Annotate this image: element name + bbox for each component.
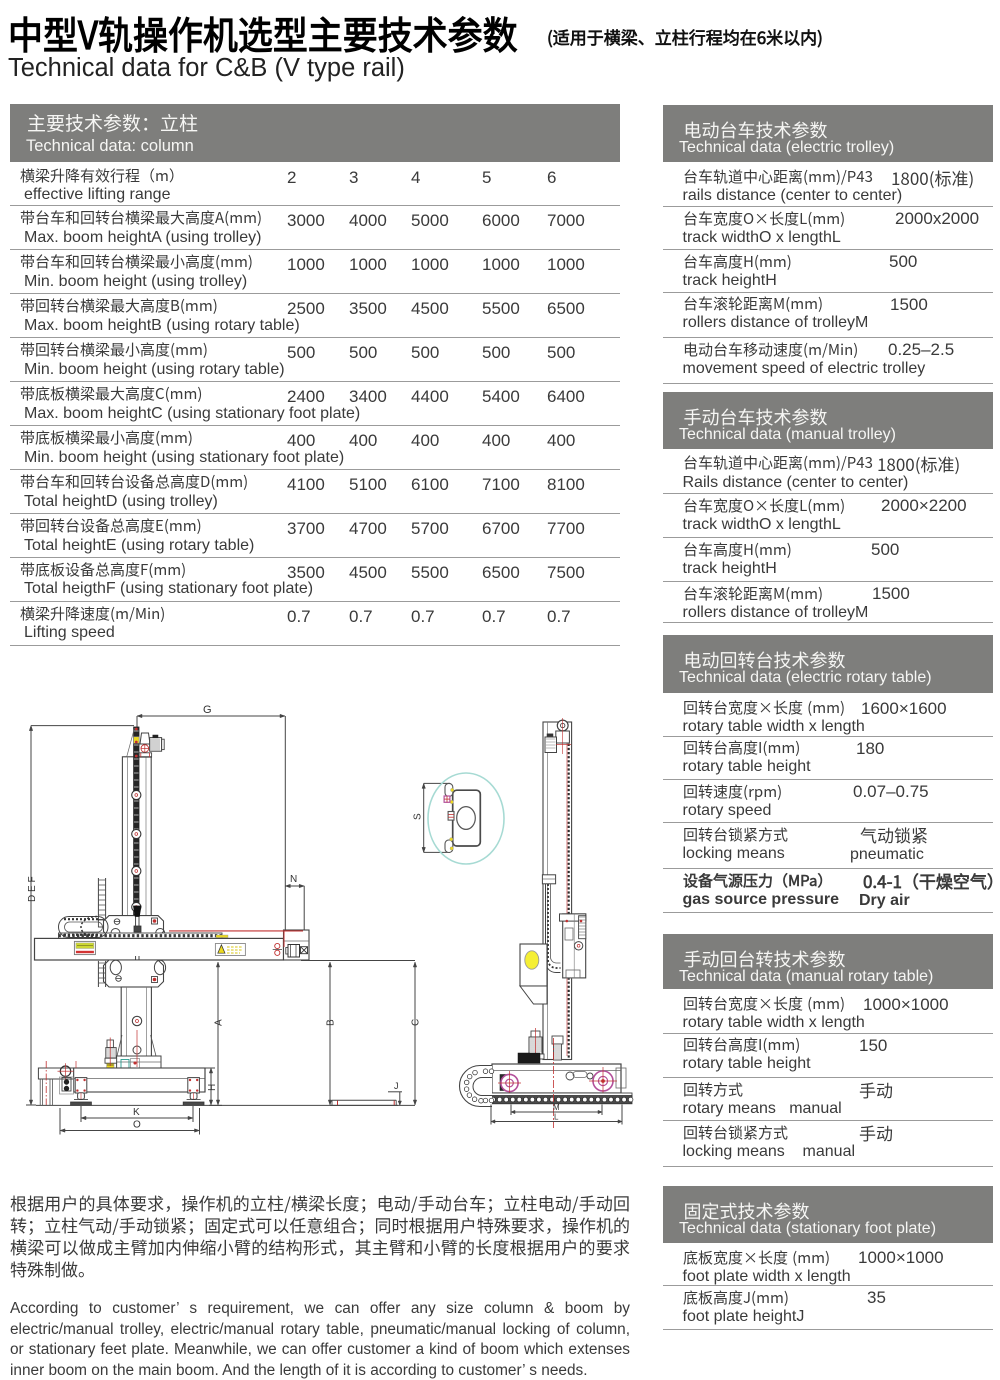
svg-text:B: B: [326, 1019, 337, 1026]
svg-text:H: H: [207, 1084, 218, 1091]
svg-text:A: A: [214, 1019, 225, 1026]
svg-text:O: O: [133, 1120, 141, 1131]
svg-text:J: J: [394, 1081, 399, 1091]
svg-text:C: C: [411, 1019, 422, 1026]
svg-text:N: N: [290, 874, 297, 885]
svg-text:K: K: [133, 1107, 140, 1118]
svg-text:S: S: [413, 813, 424, 820]
svg-text:L: L: [554, 1113, 559, 1122]
svg-text:M: M: [553, 1103, 560, 1112]
svg-text:G: G: [203, 704, 212, 716]
svg-text:D E F: D E F: [27, 876, 38, 902]
